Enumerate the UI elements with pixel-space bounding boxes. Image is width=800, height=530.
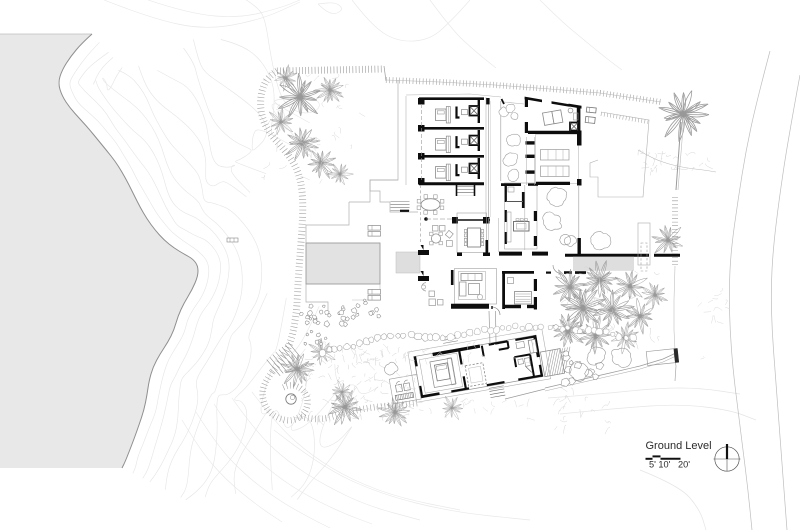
svg-text:5' 10' 20': 5' 10' 20' [649,459,690,469]
svg-text:Ground Level: Ground Level [646,440,712,452]
